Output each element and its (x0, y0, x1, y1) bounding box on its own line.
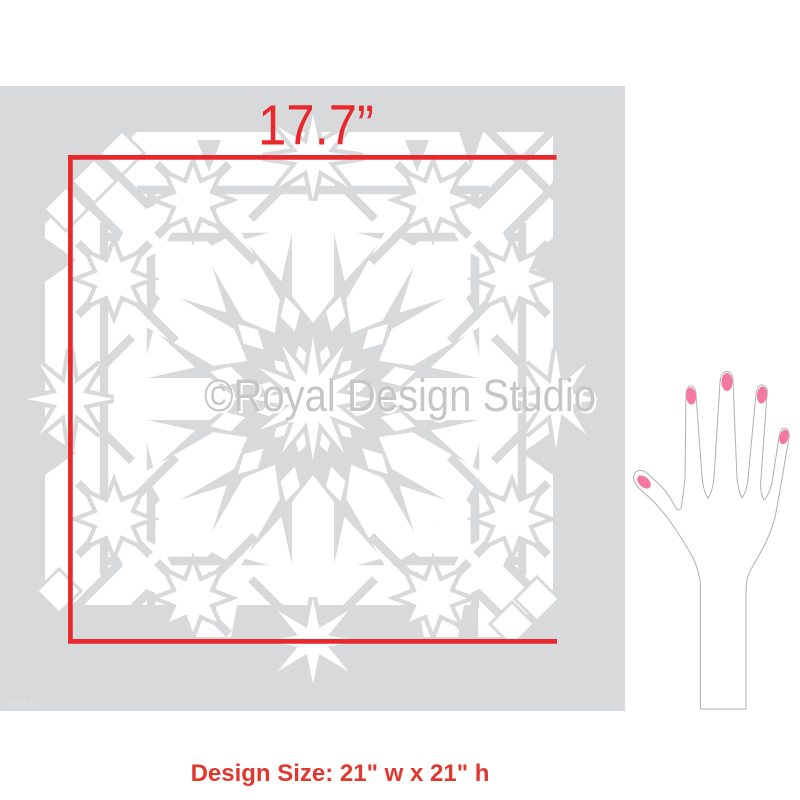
svg-text:Design Size: 21" w x 21" h: Design Size: 21" w x 21" h (191, 760, 490, 787)
svg-text:©Royal Design Studio: ©Royal Design Studio (204, 370, 596, 421)
svg-text:17.7”: 17.7” (258, 94, 374, 158)
svg-text:B364: B364 (8, 699, 34, 711)
